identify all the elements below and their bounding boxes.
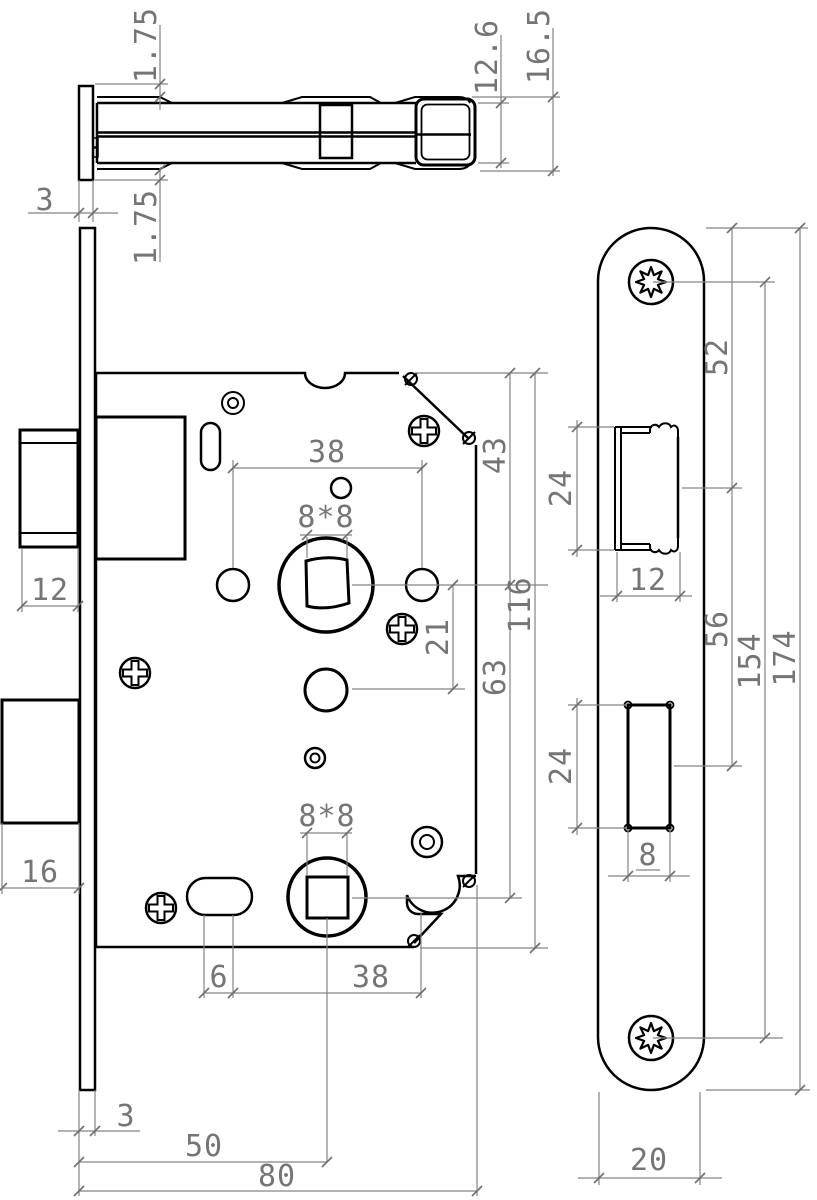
rivet-icon xyxy=(222,392,244,414)
faceplate-front-bar xyxy=(80,228,95,1090)
dim-handle-spacing-top: 38 xyxy=(308,435,346,470)
front-view xyxy=(2,228,476,1090)
spindle-square-lower xyxy=(307,877,348,918)
dim-spindle-to-spindle: 63 xyxy=(478,658,513,696)
latch-body xyxy=(96,417,185,559)
dim-plate-thickness-bottom: 3 xyxy=(116,1099,135,1134)
dim-latch-to-deadbolt: 56 xyxy=(700,610,735,648)
deadbolt-opening xyxy=(625,702,674,832)
phillips-screw-icon-bl xyxy=(146,893,176,923)
rivet-icon-inner xyxy=(228,398,238,408)
top-view xyxy=(79,86,475,180)
faceplate-edge xyxy=(79,86,93,180)
rivet-icon-mid xyxy=(305,748,325,768)
dim-deadbolt-height: 24 xyxy=(544,747,579,785)
body-top-edge xyxy=(96,373,399,388)
deadbolt-head xyxy=(2,700,79,823)
dim-inner-height: 12.6 xyxy=(470,19,505,95)
dim-top-to-spindle: 43 xyxy=(478,436,513,474)
dim-body-height: 116 xyxy=(503,576,538,633)
latch-head xyxy=(20,430,78,547)
dim-latch-width: 12 xyxy=(31,573,69,608)
dim-handle-spacing-bottom: 38 xyxy=(352,960,390,995)
dim-plate-thickness-top: 3 xyxy=(35,183,54,218)
latch-opening xyxy=(615,423,678,554)
dim-total-height-fp: 174 xyxy=(768,629,803,686)
phillips-screw-icon-mr xyxy=(387,614,417,644)
slot-horizontal xyxy=(187,878,252,915)
dim-spindle-to-cylinder: 21 xyxy=(421,618,456,656)
dim-total-height-top: 16.5 xyxy=(522,8,557,84)
dimension-lines xyxy=(2,25,810,1196)
latch-head-lines xyxy=(20,443,78,533)
slot-vertical xyxy=(201,423,220,470)
spindle-hub-inner xyxy=(422,105,470,160)
lock-technical-drawing: 1.75 12.6 16.5 3 1.75 38 8*8 43 12 21 11… xyxy=(0,0,817,1200)
phillips-screw-icon-tr xyxy=(409,416,439,446)
rivet-icon-mid-inner xyxy=(311,754,320,763)
dim-plate-width: 20 xyxy=(630,1143,668,1178)
phillips-screw-icon-ml xyxy=(120,658,150,688)
faceplate-outline xyxy=(598,228,704,1090)
small-hole-upper xyxy=(331,478,351,498)
spindle-hub-outer xyxy=(416,99,475,165)
dim-deadbolt-width-front: 16 xyxy=(21,855,59,890)
spindle-square-upper xyxy=(306,558,349,608)
dim-body-depth: 80 xyxy=(258,1159,296,1194)
dimension-labels: 1.75 12.6 16.5 3 1.75 38 8*8 43 12 21 11… xyxy=(21,7,803,1194)
dim-latch-height: 24 xyxy=(544,469,579,507)
dim-screw-spacing: 154 xyxy=(733,632,768,689)
dim-spindle-top: 8*8 xyxy=(297,500,354,535)
dim-spindle-bottom: 8*8 xyxy=(298,799,355,834)
dim-offset-bottom: 1.75 xyxy=(129,189,164,265)
faceplate-view xyxy=(598,228,704,1090)
dim-offset-top: 1.75 xyxy=(129,7,164,83)
corner-screw-icons xyxy=(405,373,475,947)
rivet-icon-right-inner xyxy=(420,835,434,849)
dim-top-to-latch: 52 xyxy=(700,338,735,376)
dim-latch-width-fp: 12 xyxy=(629,563,667,598)
dim-deadbolt-width-fp: 8 xyxy=(638,838,657,873)
cylinder-hole xyxy=(305,669,347,711)
rivet-icon-right xyxy=(412,827,442,857)
dim-backset: 50 xyxy=(185,1129,223,1164)
fixing-hole-left xyxy=(217,569,249,601)
drawing-canvas: 1.75 12.6 16.5 3 1.75 38 8*8 43 12 21 11… xyxy=(0,0,817,1200)
dim-slot-offset: 6 xyxy=(209,960,228,995)
